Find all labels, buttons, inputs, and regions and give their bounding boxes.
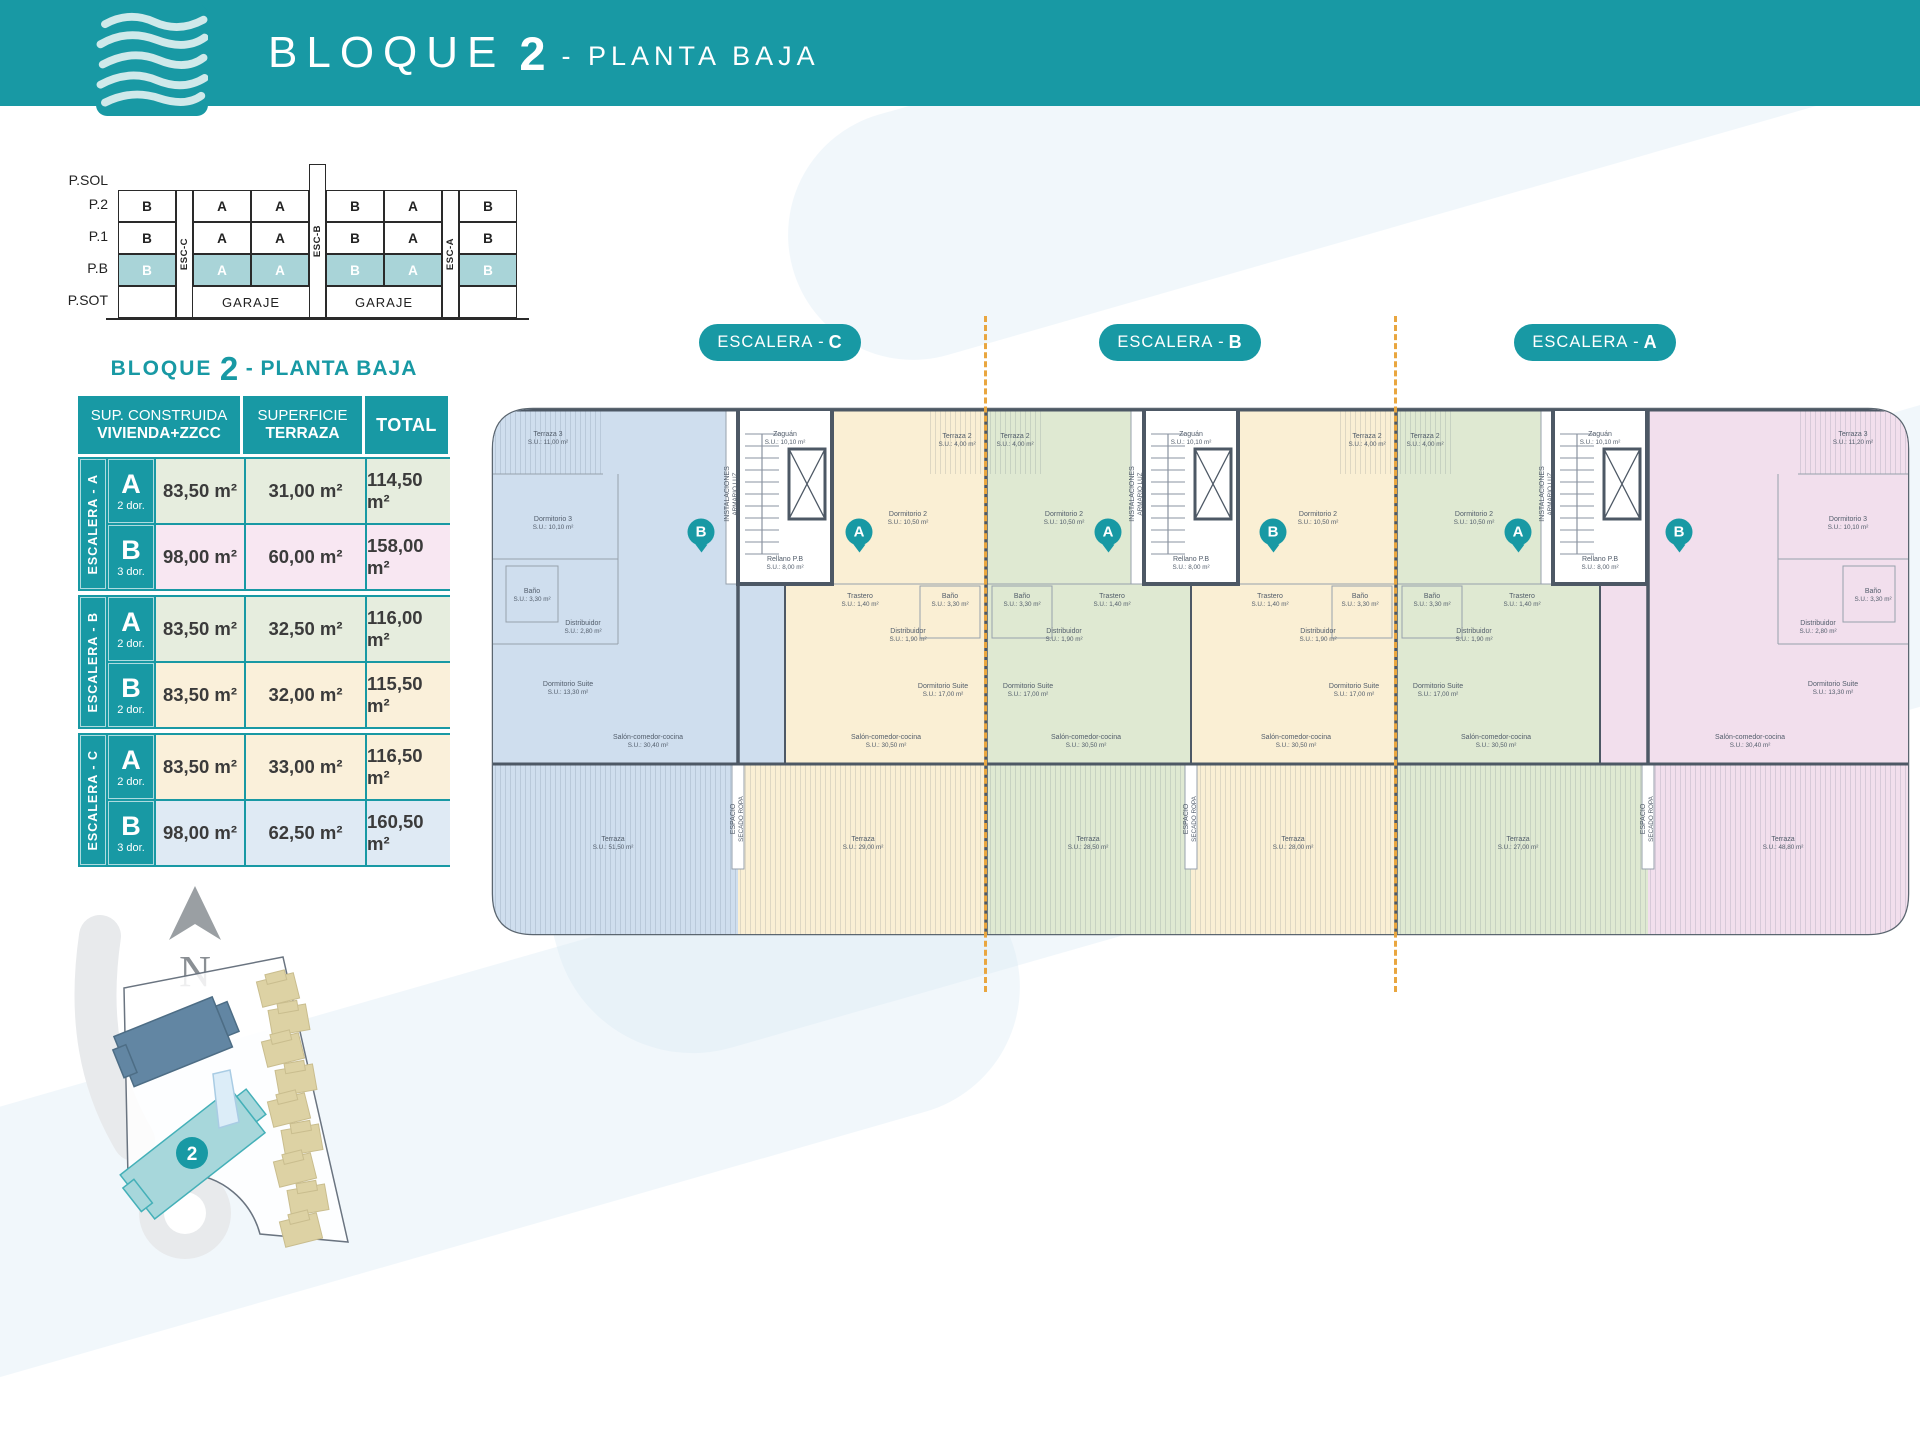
room-label: DistribuidorS.U.: 1,90 m² xyxy=(1299,628,1336,644)
table-title-post: - PLANTA BAJA xyxy=(246,357,418,380)
total-value: 160,50 m² xyxy=(367,801,450,865)
room-label: ZaguánS.U.: 10,10 m² xyxy=(1171,431,1212,447)
terrace-value: 31,00 m² xyxy=(246,459,365,523)
building-stack-diagram: P.SOLP.2P.1P.BP.SOTBAABABBAABABBAABABGAR… xyxy=(50,150,570,370)
stack-unit-cell: A xyxy=(193,254,251,286)
room-label: ESPACIOSECADO ROPA xyxy=(1640,796,1656,842)
room-label: Terraza 2S.U.: 4,00 m² xyxy=(996,433,1033,449)
unit-badge: B xyxy=(688,519,715,546)
pill-escalera-b: ESCALERA -B xyxy=(1099,324,1261,361)
header-bar: BLOQUE 2 - PLANTA BAJA xyxy=(0,0,1920,106)
room-label: Dormitorio SuiteS.U.: 13,30 m² xyxy=(543,681,593,697)
group-label: ESCALERA - A xyxy=(80,459,106,589)
terrace-value: 60,00 m² xyxy=(246,525,365,589)
stack-unit-cell: B xyxy=(459,222,517,254)
room-label: BañoS.U.: 3,30 m² xyxy=(931,593,968,609)
room-label: Dormitorio SuiteS.U.: 17,00 m² xyxy=(918,683,968,699)
room-label: ESPACIOSECADO ROPA xyxy=(1183,796,1199,842)
room-label: INSTALACIONESARMARIO LUZ xyxy=(1129,466,1145,522)
group-label: ESCALERA - C xyxy=(80,735,106,865)
built-value: 83,50 m² xyxy=(156,735,244,799)
unit-badge: A xyxy=(1095,519,1122,546)
built-value: 83,50 m² xyxy=(156,663,244,727)
room-label: BañoS.U.: 3,30 m² xyxy=(1003,593,1040,609)
room-label: DistribuidorS.U.: 1,90 m² xyxy=(889,628,926,644)
room-label: Terraza 2S.U.: 4,00 m² xyxy=(1406,433,1443,449)
room-label: TerrazaS.U.: 48,80 m² xyxy=(1763,836,1804,852)
floor-label: P.SOT xyxy=(48,292,108,308)
stack-unit-cell: A xyxy=(193,222,251,254)
unit-badge: A xyxy=(1505,519,1532,546)
table-title-number: 2 xyxy=(220,350,238,387)
title-sub: - PLANTA BAJA xyxy=(562,41,820,72)
terrace-value: 32,00 m² xyxy=(246,663,365,727)
room-label: Dormitorio SuiteS.U.: 17,00 m² xyxy=(1329,683,1379,699)
total-value: 116,00 m² xyxy=(367,597,450,661)
room-label: Terraza 3S.U.: 11,20 m² xyxy=(1833,431,1873,447)
stack-unit-cell: B xyxy=(459,254,517,286)
page-title: BLOQUE 2 - PLANTA BAJA xyxy=(268,0,820,106)
unit-badge: B xyxy=(1260,519,1287,546)
room-label: DistribuidorS.U.: 1,90 m² xyxy=(1045,628,1082,644)
room-label: TrasteroS.U.: 1,40 m² xyxy=(1251,593,1288,609)
built-value: 98,00 m² xyxy=(156,525,244,589)
table-group-escalera-a: ESCALERA - A A2 dor. 83,50 m² 31,00 m² 1… xyxy=(78,457,450,591)
section-divider-line xyxy=(1394,316,1397,992)
room-label: Terraza 2S.U.: 4,00 m² xyxy=(1348,433,1385,449)
garaje-cell: GARAJE xyxy=(326,286,442,318)
room-label: BañoS.U.: 3,30 m² xyxy=(1854,588,1891,604)
unit-badge: A xyxy=(846,519,873,546)
title-number: 2 xyxy=(519,26,545,81)
stack-unit-cell: B xyxy=(118,190,176,222)
pill-escalera-c: ESCALERA -C xyxy=(699,324,861,361)
room-label: Dormitorio 2S.U.: 10,50 m² xyxy=(1298,511,1339,527)
floor-plan: ESCALERA -C ESCALERA -B ESCALERA -A xyxy=(480,316,1920,1016)
room-label: TerrazaS.U.: 28,50 m² xyxy=(1068,836,1109,852)
table-group-escalera-b: ESCALERA - B A2 dor. 83,50 m² 32,50 m² 1… xyxy=(78,595,450,729)
stack-unit-cell: B xyxy=(326,222,384,254)
apartment-badge: B3 dor. xyxy=(108,525,154,589)
room-label: TerrazaS.U.: 29,00 m² xyxy=(843,836,884,852)
brand-waves-logo xyxy=(96,4,208,116)
stack-unit-cell: A xyxy=(384,190,442,222)
stack-unit-cell: B xyxy=(118,222,176,254)
table-group-escalera-c: ESCALERA - C A2 dor. 83,50 m² 33,00 m² 1… xyxy=(78,733,450,867)
room-label: Dormitorio 2S.U.: 10,50 m² xyxy=(888,511,929,527)
total-value: 116,50 m² xyxy=(367,735,450,799)
total-value: 114,50 m² xyxy=(367,459,450,523)
room-label: Dormitorio SuiteS.U.: 13,30 m² xyxy=(1808,681,1858,697)
room-label: ZaguánS.U.: 10,10 m² xyxy=(1580,431,1621,447)
room-label: Salón-comedor-cocinaS.U.: 30,50 m² xyxy=(1051,734,1121,750)
stack-unit-cell: A xyxy=(251,254,309,286)
room-label: Salón-comedor-cocinaS.U.: 30,40 m² xyxy=(1715,734,1785,750)
stack-unit-cell: A xyxy=(384,222,442,254)
stack-unit-cell: A xyxy=(251,190,309,222)
stack-unit-cell: A xyxy=(193,190,251,222)
room-labels-layer: BAABABZaguánS.U.: 10,10 m²Rellano P.BS.U… xyxy=(488,394,1913,950)
room-label: Salón-comedor-cocinaS.U.: 30,50 m² xyxy=(1261,734,1331,750)
stack-unit-cell: B xyxy=(118,254,176,286)
stack-unit-cell: B xyxy=(459,190,517,222)
escalera-column: ESC-A xyxy=(442,190,459,318)
stack-unit-cell: A xyxy=(384,254,442,286)
room-label: Terraza 3S.U.: 11,00 m² xyxy=(528,431,568,447)
north-arrow-icon xyxy=(169,886,221,940)
room-label: INSTALACIONESARMARIO LUZ xyxy=(1539,466,1555,522)
room-label: Rellano P.BS.U.: 8,00 m² xyxy=(1172,556,1209,572)
room-label: Rellano P.BS.U.: 8,00 m² xyxy=(1581,556,1618,572)
room-label: DistribuidorS.U.: 2,80 m² xyxy=(1799,620,1836,636)
apartment-badge: B3 dor. xyxy=(108,801,154,865)
room-label: Dormitorio 2S.U.: 10,50 m² xyxy=(1044,511,1085,527)
escalera-column: ESC-C xyxy=(176,190,193,318)
room-label: TerrazaS.U.: 51,50 m² xyxy=(593,836,634,852)
stack-unit-cell: B xyxy=(326,190,384,222)
room-label: Dormitorio 3S.U.: 10,10 m² xyxy=(533,516,574,532)
total-value: 115,50 m² xyxy=(367,663,450,727)
floor-label: P.B xyxy=(48,260,108,276)
room-label: Dormitorio SuiteS.U.: 17,00 m² xyxy=(1413,683,1463,699)
apartment-badge: A2 dor. xyxy=(108,459,154,523)
room-label: Dormitorio 3S.U.: 10,10 m² xyxy=(1828,516,1869,532)
room-label: DistribuidorS.U.: 1,90 m² xyxy=(1455,628,1492,644)
room-label: TrasteroS.U.: 1,40 m² xyxy=(1093,593,1130,609)
terrace-value: 62,50 m² xyxy=(246,801,365,865)
room-label: TerrazaS.U.: 28,00 m² xyxy=(1273,836,1314,852)
garaje-cell: GARAJE xyxy=(176,286,326,318)
floor-label: P.SOL xyxy=(48,172,108,188)
header-total: TOTAL xyxy=(365,396,448,454)
room-label: TrasteroS.U.: 1,40 m² xyxy=(841,593,878,609)
room-label: ZaguánS.U.: 10,10 m² xyxy=(765,431,806,447)
table-title-pre: BLOQUE xyxy=(111,357,213,380)
svg-text:2: 2 xyxy=(187,1144,198,1165)
apartment-badge: A2 dor. xyxy=(108,597,154,661)
table-title: BLOQUE 2 - PLANTA BAJA xyxy=(78,350,450,388)
floor-label: P.1 xyxy=(48,228,108,244)
built-value: 83,50 m² xyxy=(156,459,244,523)
sot-cell xyxy=(459,286,517,318)
room-label: INSTALACIONESARMARIO LUZ xyxy=(724,466,740,522)
room-label: Salón-comedor-cocinaS.U.: 30,50 m² xyxy=(851,734,921,750)
ground-line xyxy=(106,318,529,320)
room-label: Terraza 2S.U.: 4,00 m² xyxy=(938,433,975,449)
group-label: ESCALERA - B xyxy=(80,597,106,727)
unit-badge: B xyxy=(1666,519,1693,546)
floor-label: P.2 xyxy=(48,196,108,212)
stack-unit-cell: A xyxy=(251,222,309,254)
room-label: Rellano P.BS.U.: 8,00 m² xyxy=(766,556,803,572)
title-main: BLOQUE xyxy=(268,28,505,78)
apartment-badge: B2 dor. xyxy=(108,663,154,727)
site-map: N xyxy=(70,878,370,1278)
room-label: BañoS.U.: 3,30 m² xyxy=(1413,593,1450,609)
surface-table: BLOQUE 2 - PLANTA BAJA SUP. CONSTRUIDA V… xyxy=(78,350,450,871)
table-header: SUP. CONSTRUIDA VIVIENDA+ZZCC SUPERFICIE… xyxy=(78,396,450,454)
terrace-value: 33,00 m² xyxy=(246,735,365,799)
header-built: SUP. CONSTRUIDA VIVIENDA+ZZCC xyxy=(78,396,240,454)
escalera-column: ESC-B xyxy=(309,164,326,318)
stack-unit-cell: B xyxy=(326,254,384,286)
room-label: BañoS.U.: 3,30 m² xyxy=(1341,593,1378,609)
built-value: 83,50 m² xyxy=(156,597,244,661)
total-value: 158,00 m² xyxy=(367,525,450,589)
header-terrace: SUPERFICIE TERRAZA xyxy=(243,396,362,454)
room-label: TrasteroS.U.: 1,40 m² xyxy=(1503,593,1540,609)
section-divider-line xyxy=(984,316,987,992)
built-value: 98,00 m² xyxy=(156,801,244,865)
room-label: Dormitorio 2S.U.: 10,50 m² xyxy=(1454,511,1495,527)
pill-escalera-a: ESCALERA -A xyxy=(1514,324,1676,361)
room-label: TerrazaS.U.: 27,00 m² xyxy=(1498,836,1539,852)
room-label: BañoS.U.: 3,30 m² xyxy=(513,588,550,604)
apartment-badge: A2 dor. xyxy=(108,735,154,799)
room-label: DistribuidorS.U.: 2,80 m² xyxy=(564,620,601,636)
room-label: Salón-comedor-cocinaS.U.: 30,50 m² xyxy=(1461,734,1531,750)
room-label: Salón-comedor-cocinaS.U.: 30,40 m² xyxy=(613,734,683,750)
room-label: Dormitorio SuiteS.U.: 17,00 m² xyxy=(1003,683,1053,699)
room-label: ESPACIOSECADO ROPA xyxy=(730,796,746,842)
terrace-value: 32,50 m² xyxy=(246,597,365,661)
sot-cell xyxy=(118,286,176,318)
